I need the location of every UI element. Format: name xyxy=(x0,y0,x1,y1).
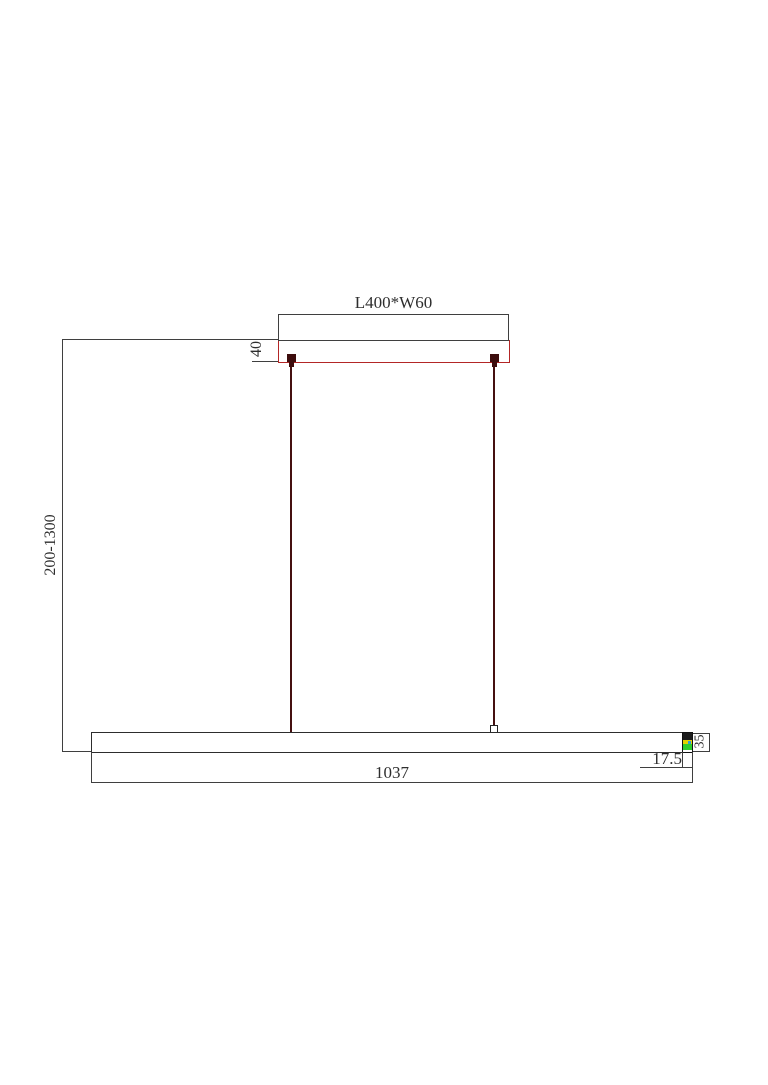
endcap xyxy=(682,732,693,753)
drop-dimension-line xyxy=(62,339,63,752)
endcap-width-extension xyxy=(682,752,683,767)
endcap-white-segment xyxy=(683,750,692,752)
suspension-bolt-right xyxy=(490,354,499,362)
suspension-cable-right xyxy=(493,367,495,727)
bar-height-dimension-line xyxy=(709,733,710,752)
canopy-size-label: L400*W60 xyxy=(278,294,509,312)
drop-extension-line-bottom xyxy=(62,751,91,752)
endcap-width-label: 17.5 xyxy=(600,750,682,768)
drop-extension-line-top xyxy=(62,339,278,340)
canopy-top-edge xyxy=(278,340,509,341)
canopy-dim-extension-right xyxy=(508,314,509,340)
suspension-cable-left xyxy=(290,367,292,732)
drop-range-label: 200-1300 xyxy=(42,475,60,615)
bar-length-dimension-line xyxy=(91,782,693,783)
canopy-dimension-line xyxy=(278,314,509,315)
canopy-height-extension-line xyxy=(252,361,278,362)
canopy-outline xyxy=(278,340,510,363)
canopy-height-label: 40 xyxy=(248,319,266,379)
suspension-bolt-left xyxy=(287,354,296,362)
bar-height-label: 35 xyxy=(693,722,708,762)
technical-drawing-canvas: L400*W60 40 200-1300 1037 17.5 35 xyxy=(0,0,768,1085)
endcap-dark-segment xyxy=(683,733,692,740)
